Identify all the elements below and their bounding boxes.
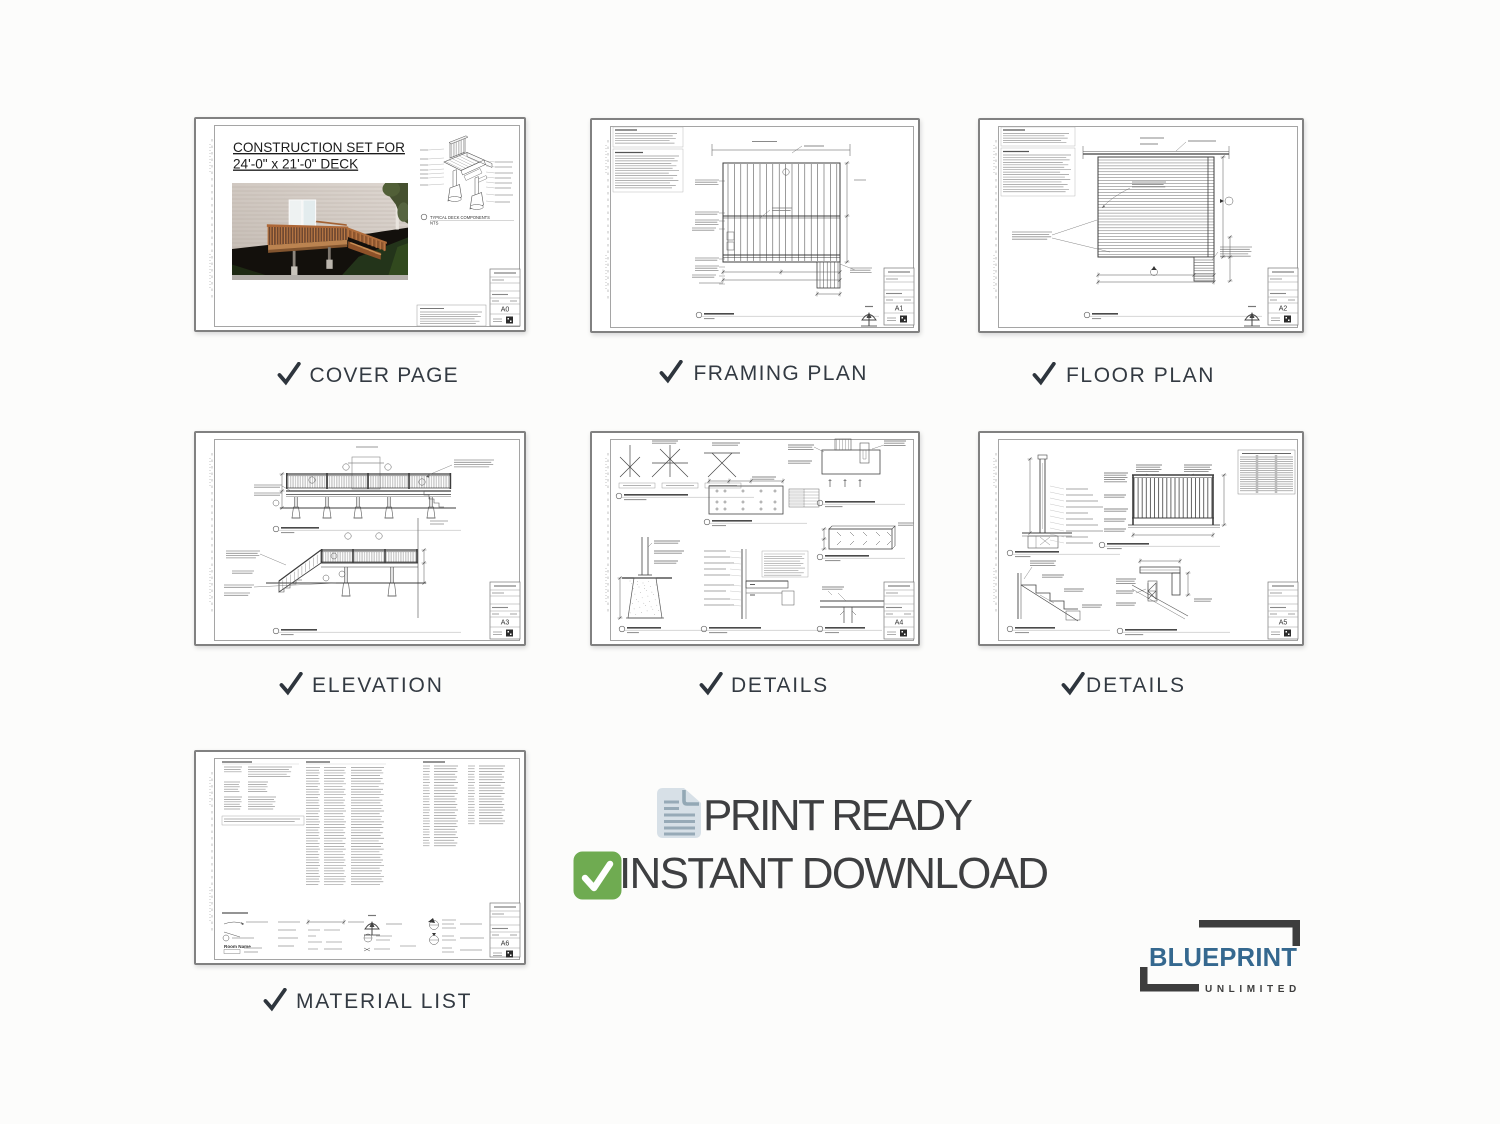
svg-text:A5: A5 — [1279, 620, 1288, 627]
svg-text:CONSTRUCTION SET FOR: CONSTRUCTION SET FOR — [233, 140, 405, 155]
svg-text:NTS: NTS — [430, 221, 439, 226]
svg-text:A4: A4 — [895, 620, 904, 627]
svg-text:A0: A0 — [501, 307, 510, 314]
svg-text:A3: A3 — [501, 620, 510, 627]
svg-text:A2: A2 — [1279, 306, 1288, 313]
svg-text:UNLIMITED: UNLIMITED — [1205, 984, 1301, 995]
svg-text:24'-0" x 21'-0" DECK: 24'-0" x 21'-0" DECK — [233, 157, 358, 172]
svg-text:A1: A1 — [895, 306, 904, 313]
svg-text:BLUEPRINT: BLUEPRINT — [1149, 944, 1297, 972]
svg-text:A6: A6 — [501, 941, 510, 948]
svg-text:TYPICAL DECK COMPONENTS: TYPICAL DECK COMPONENTS — [430, 215, 490, 220]
